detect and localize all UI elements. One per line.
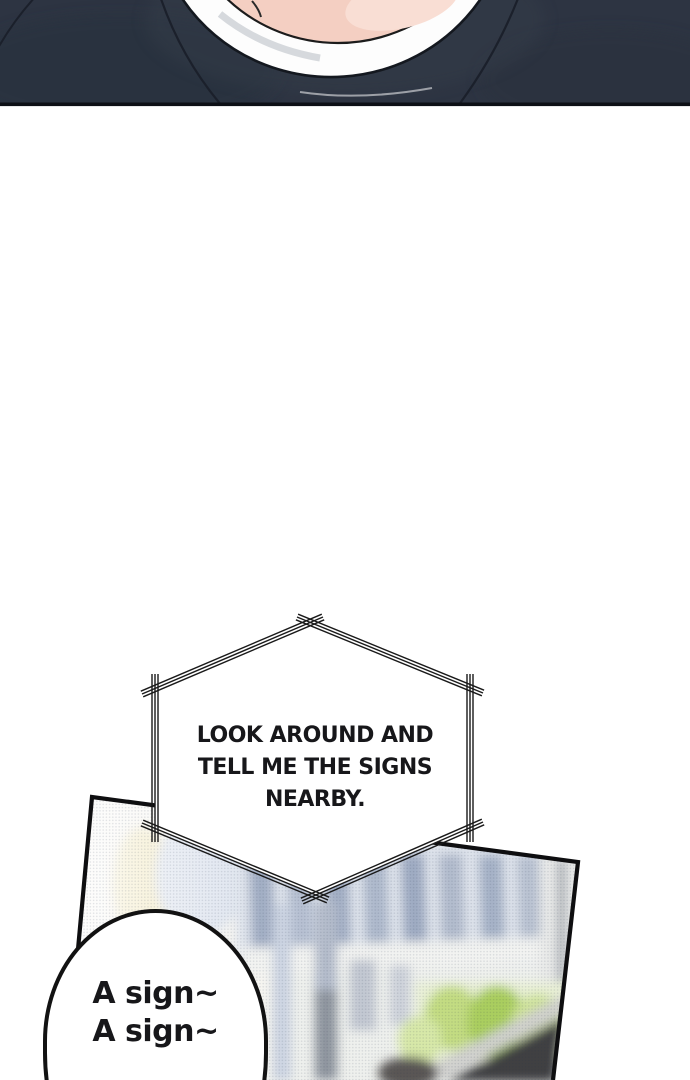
round-bubble-line: A sign~ (47, 975, 264, 1013)
round-speech-bubble: A sign~ A sign~ (43, 909, 268, 1080)
panel-top-neck-collar (0, 0, 690, 107)
hexagon-text: LOOK AROUND AND TELL ME THE SIGNS NEARBY… (130, 720, 500, 816)
round-bubble-text: A sign~ A sign~ (47, 913, 264, 1051)
comic-page: LOOK AROUND AND TELL ME THE SIGNS NEARBY… (0, 0, 690, 1080)
hexagon-speech-bubble: LOOK AROUND AND TELL ME THE SIGNS NEARBY… (130, 600, 500, 920)
hexagon-text-line: LOOK AROUND AND (130, 720, 500, 752)
hexagon-text-line: NEARBY. (130, 784, 500, 816)
hexagon-text-line: TELL ME THE SIGNS (130, 752, 500, 784)
panel-border-bottom (0, 103, 690, 107)
neck-collar-art (0, 0, 690, 107)
round-bubble-line: A sign~ (47, 1013, 264, 1051)
